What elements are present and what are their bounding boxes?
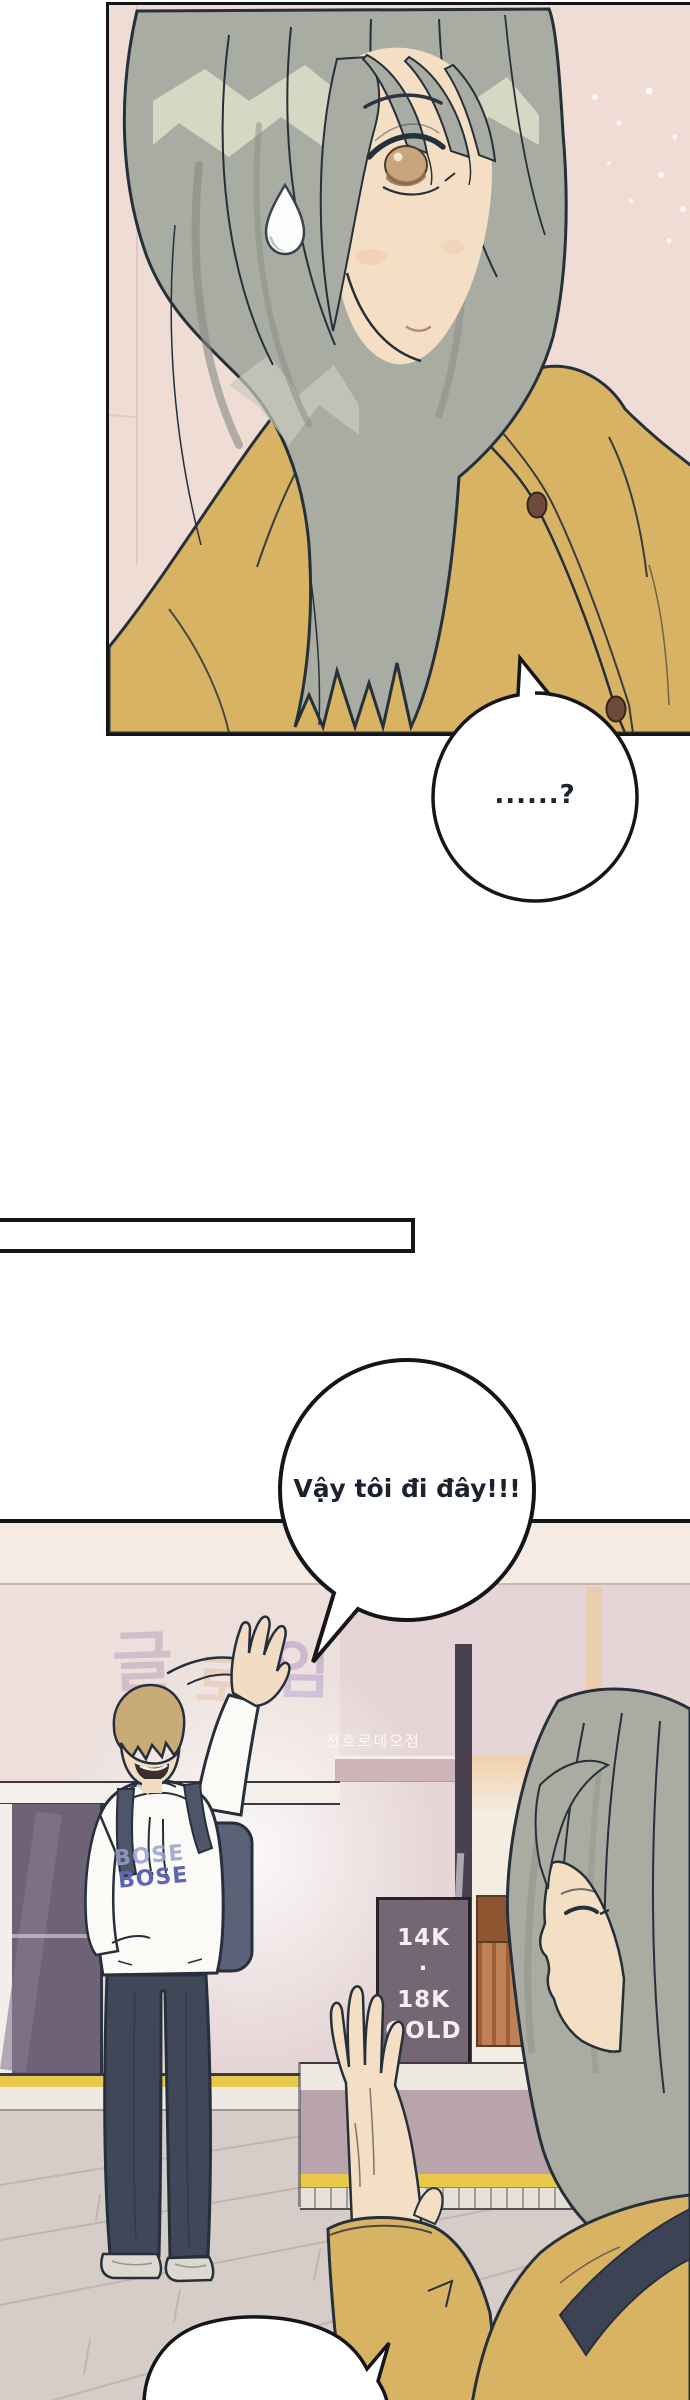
comic-page: ......? 글 로 임 천호로데오점 xyxy=(0,0,690,2400)
panel1-art xyxy=(109,5,690,733)
speech-bubble-farewell xyxy=(270,1350,550,1680)
boy-shoe xyxy=(101,2254,161,2278)
girl-foreground xyxy=(328,1689,690,2400)
cardigan-button xyxy=(528,493,547,518)
question-text: ......? xyxy=(445,772,625,818)
boy-raised-arm xyxy=(196,1695,259,1815)
girl-raised-hand xyxy=(331,1986,421,2225)
farewell-text: Vậy tôi đi đây!!! xyxy=(287,1462,527,1514)
wall-speckles xyxy=(592,88,686,244)
boy-shoe xyxy=(166,2257,213,2281)
boy-pants xyxy=(105,1975,211,2258)
panel-divider-bar xyxy=(0,1218,415,1253)
speech-bubble-partial xyxy=(130,2310,410,2400)
panel-girl-closeup xyxy=(106,2,690,736)
boy-waving: BOSE BOSE xyxy=(86,1617,290,2281)
boy-neck xyxy=(142,1779,162,1793)
